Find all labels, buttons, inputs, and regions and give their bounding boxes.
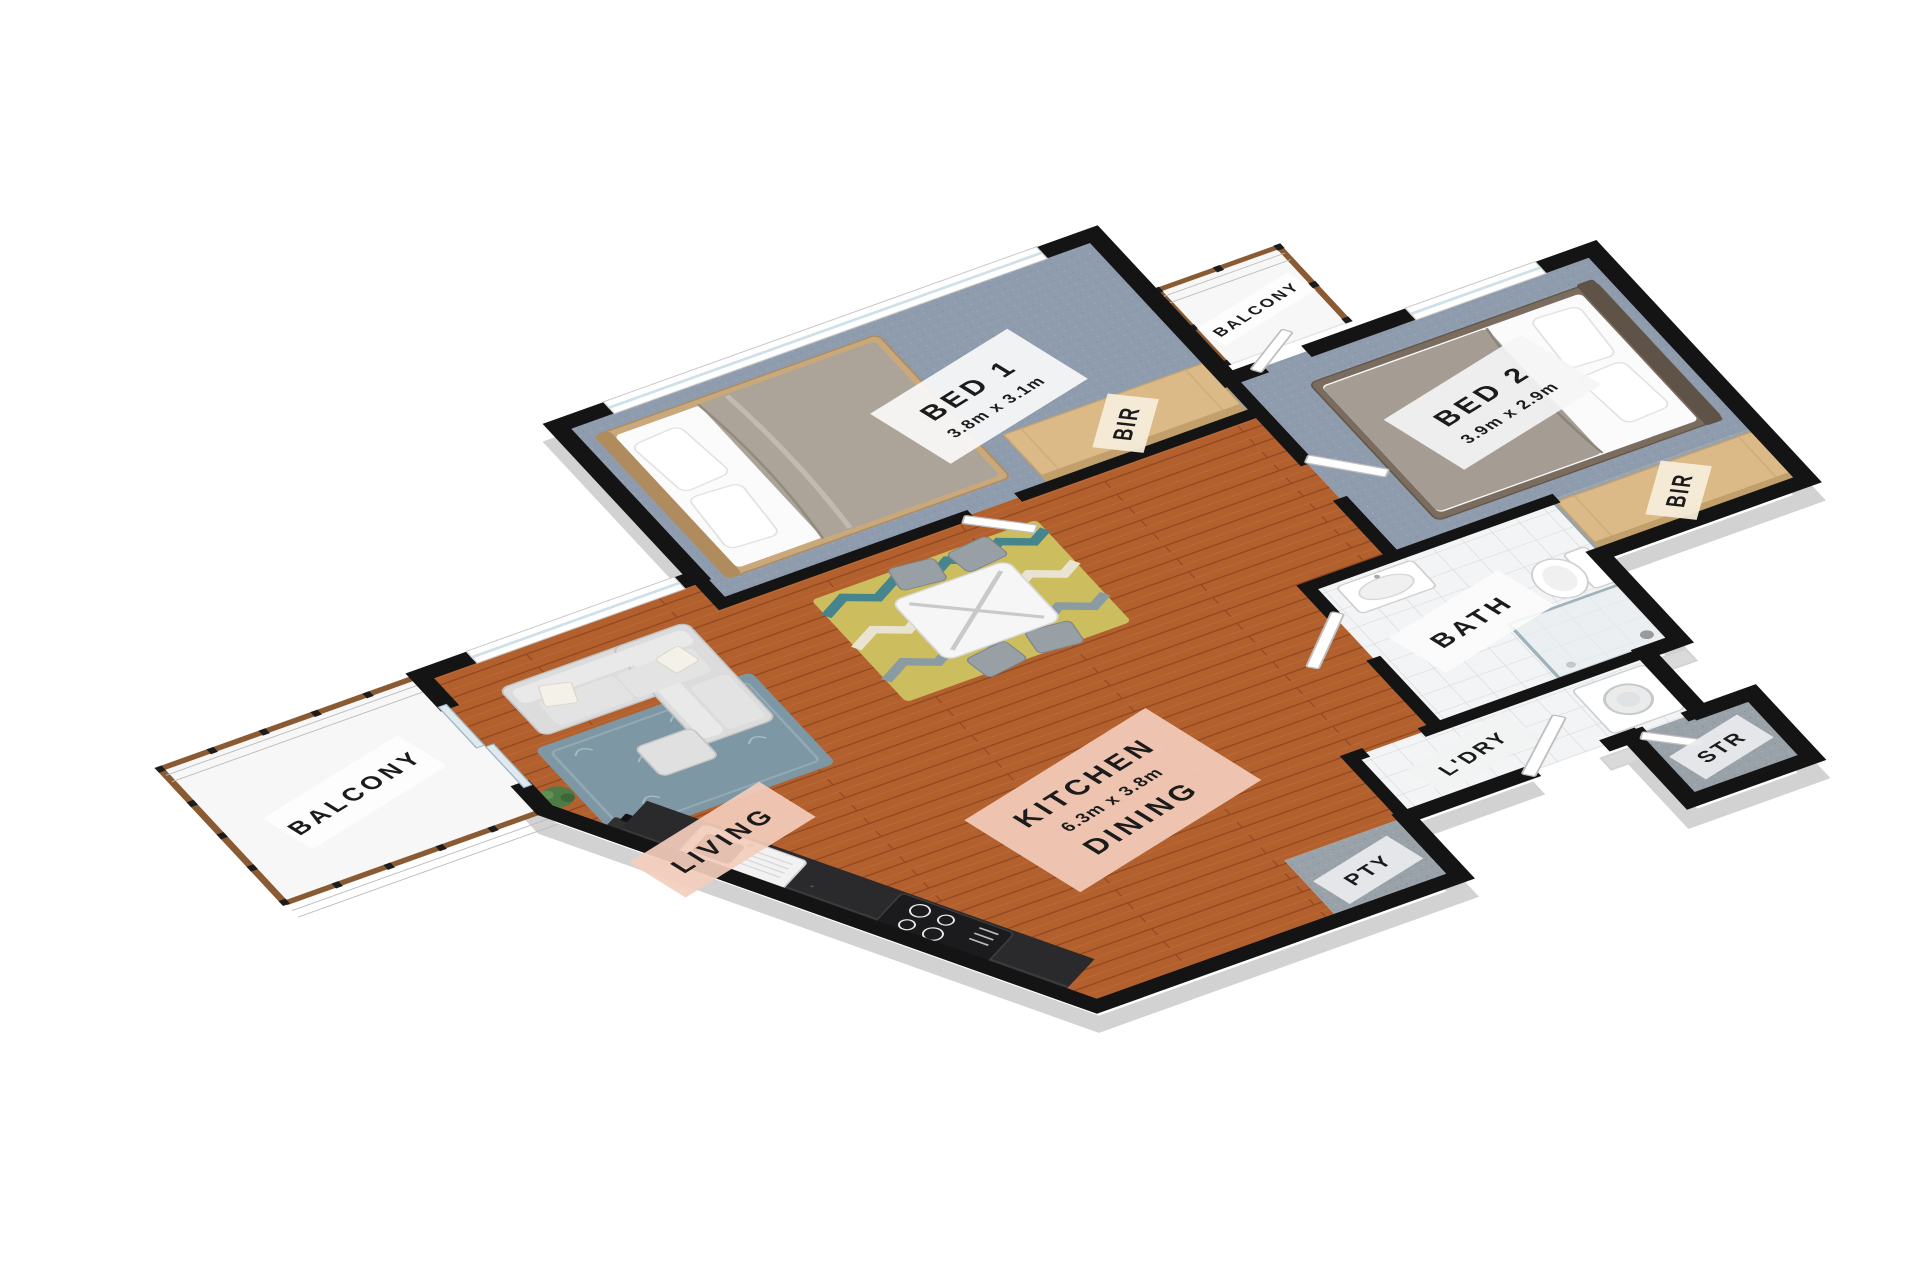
floorplan-page: BALCONY BALCONY LIVING KITCHEN 6.3m x 3.… bbox=[0, 0, 1920, 1280]
plan: BALCONY BALCONY LIVING KITCHEN 6.3m x 3.… bbox=[11, 98, 1920, 1205]
floorplan-canvas: BALCONY BALCONY LIVING KITCHEN 6.3m x 3.… bbox=[0, 0, 1920, 1280]
